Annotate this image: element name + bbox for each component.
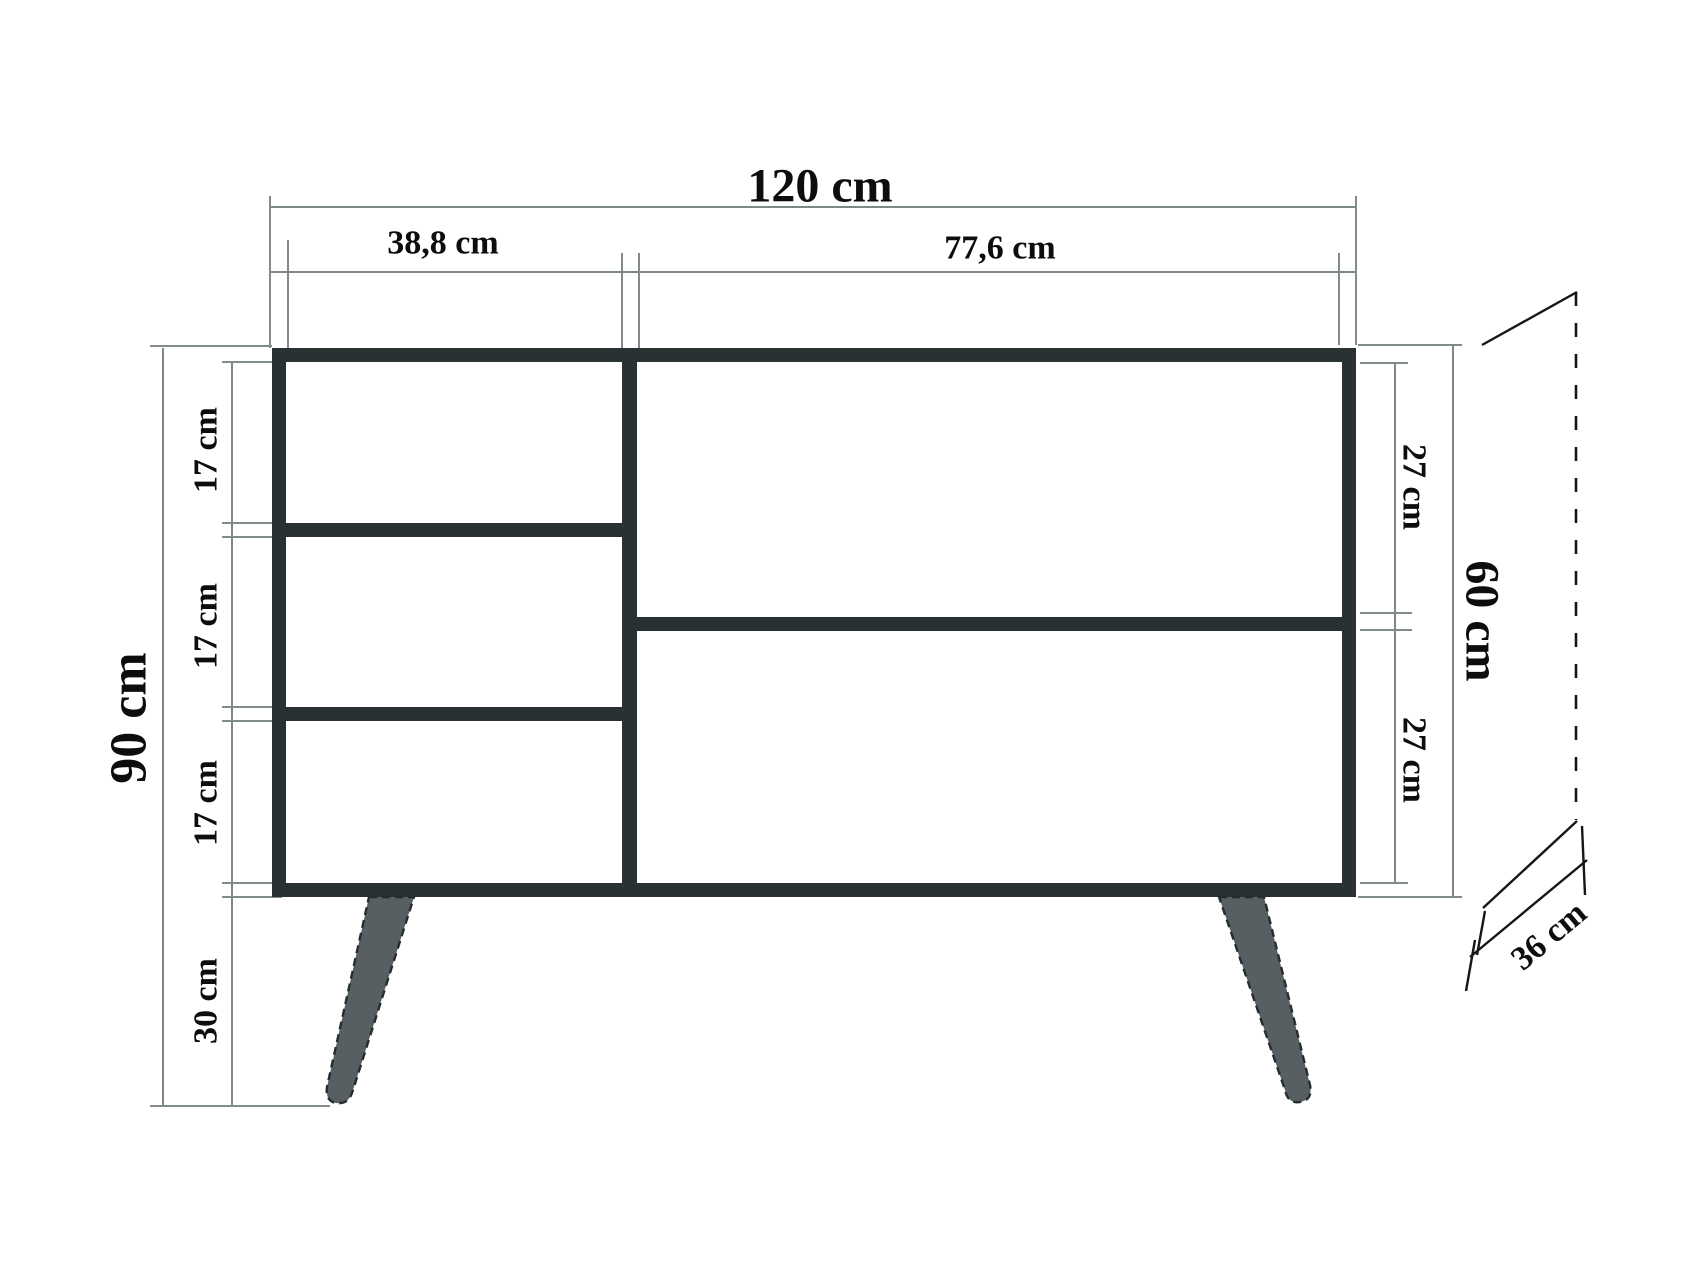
- depth-tick-left-lower: [1466, 940, 1475, 991]
- cabinet-legs: [327, 897, 1311, 1103]
- projection-top-diagonal: [1482, 292, 1577, 345]
- right-shelf: [637, 617, 1342, 631]
- dim-value-left-compartment-3: 17 cm: [188, 760, 225, 846]
- left-leg: [327, 897, 414, 1103]
- cabinet-body: [272, 348, 1356, 897]
- cabinet-bottom-panel: [272, 883, 1356, 897]
- dim-value-left-compartment-2: 17 cm: [188, 583, 225, 669]
- dim-value-depth: 36 cm: [1504, 894, 1594, 978]
- left-shelf-2: [286, 707, 622, 721]
- technical-drawing-canvas: 120 cm 38,8 cm 77,6 cm 90 cm 17 cm 17 cm…: [0, 0, 1696, 1272]
- dim-value-left-compartment-1: 17 cm: [188, 407, 225, 493]
- dim-value-total-height: 90 cm: [101, 652, 158, 783]
- dim-value-right-compartment-2: 27 cm: [1396, 717, 1433, 803]
- cabinet-top-panel: [272, 348, 1356, 362]
- dim-value-left-width: 38,8 cm: [387, 225, 498, 262]
- right-leg: [1219, 897, 1311, 1102]
- dim-value-body-height: 60 cm: [1456, 560, 1509, 681]
- left-shelf-1: [286, 523, 622, 537]
- cabinet-left-side: [272, 348, 286, 897]
- center-divider: [622, 362, 637, 883]
- depth-dim-line-upper: [1483, 821, 1577, 908]
- cabinet-right-side: [1342, 348, 1356, 897]
- dim-value-right-width: 77,6 cm: [944, 230, 1055, 267]
- dim-value-right-compartment-1: 27 cm: [1396, 444, 1433, 530]
- dimension-labels: 120 cm 38,8 cm 77,6 cm 90 cm 17 cm 17 cm…: [101, 160, 1594, 1044]
- dim-value-total-width: 120 cm: [747, 160, 892, 213]
- dim-value-leg-height: 30 cm: [188, 958, 225, 1044]
- depth-tick-right: [1582, 826, 1585, 895]
